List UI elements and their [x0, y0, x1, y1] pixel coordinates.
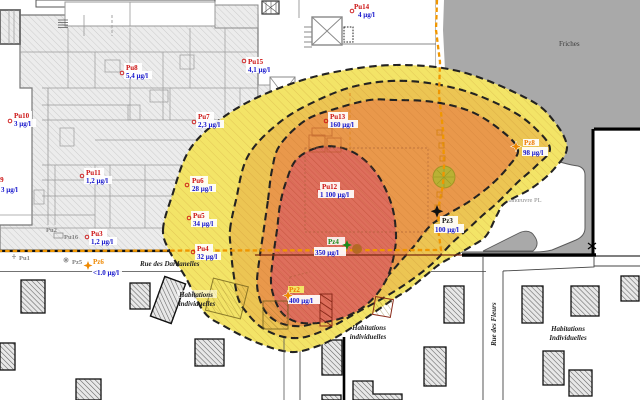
svg-text:Habitations: Habitations [178, 291, 213, 299]
svg-text:Pu1: Pu1 [19, 255, 30, 262]
svg-text:<1.0 µg/l: <1.0 µg/l [93, 269, 119, 277]
svg-text:Pz3: Pz3 [442, 217, 453, 225]
svg-text:Pu12: Pu12 [322, 183, 338, 191]
svg-text:Pz6: Pz6 [93, 258, 104, 266]
svg-text:Pz8: Pz8 [524, 139, 535, 147]
svg-text:Pu7: Pu7 [198, 113, 210, 121]
svg-text:Habitations: Habitations [550, 325, 585, 333]
svg-text:Pu13: Pu13 [330, 113, 346, 121]
svg-text:Pu15: Pu15 [248, 58, 264, 66]
svg-text:Pu3: Pu3 [91, 230, 103, 238]
svg-text:3 µg/l: 3 µg/l [1, 186, 18, 194]
svg-text:98 µg/l: 98 µg/l [523, 149, 543, 157]
svg-text:Pu8: Pu8 [126, 64, 138, 72]
svg-text:1,2 µg/l: 1,2 µg/l [86, 177, 108, 185]
svg-text:400 µg/l: 400 µg/l [289, 297, 313, 305]
svg-text:individuelles: individuelles [350, 333, 387, 341]
svg-text:Pu9: Pu9 [0, 176, 4, 184]
svg-text:Rue des Fleurs: Rue des Fleurs [490, 302, 498, 347]
svg-text:Pu14: Pu14 [354, 3, 370, 11]
svg-text:Pu5: Pu5 [193, 212, 205, 220]
svg-text:Pu6: Pu6 [192, 177, 204, 185]
svg-text:100 µg/l: 100 µg/l [435, 226, 459, 234]
svg-text:160 µg/l: 160 µg/l [330, 121, 354, 129]
svg-text:2,3 µg/l: 2,3 µg/l [198, 121, 220, 129]
svg-text:Individuelles: Individuelles [548, 334, 587, 342]
svg-text:Pz5: Pz5 [72, 259, 83, 266]
svg-text:3 µg/l: 3 µg/l [14, 120, 31, 128]
svg-text:Friches: Friches [559, 40, 580, 48]
svg-text:1,2 µg/l: 1,2 µg/l [91, 238, 113, 246]
svg-text:34 µg/l: 34 µg/l [193, 220, 213, 228]
svg-text:4,1 µg/l: 4,1 µg/l [248, 66, 270, 74]
svg-text:Pu4: Pu4 [197, 245, 209, 253]
svg-text:1 100 µg/l: 1 100 µg/l [320, 191, 349, 199]
svg-text:32 µg/l: 32 µg/l [197, 253, 217, 261]
svg-text:28 µg/l: 28 µg/l [192, 185, 212, 193]
svg-text:4 µg/l: 4 µg/l [358, 11, 375, 19]
svg-text:350 µg/l: 350 µg/l [315, 249, 339, 257]
svg-text:5,4 µg/l: 5,4 µg/l [126, 72, 148, 80]
svg-text:Pz4: Pz4 [328, 238, 339, 246]
svg-text:Habitations: Habitations [351, 324, 386, 332]
svg-text:Pu10: Pu10 [14, 112, 30, 120]
svg-text:Pu11: Pu11 [86, 169, 101, 177]
svg-text:Pz2: Pz2 [289, 286, 300, 294]
svg-text:Pu16: Pu16 [64, 234, 79, 241]
svg-text:Rue des Dardanelles: Rue des Dardanelles [139, 260, 200, 268]
svg-text:individuelles: individuelles [179, 300, 216, 308]
